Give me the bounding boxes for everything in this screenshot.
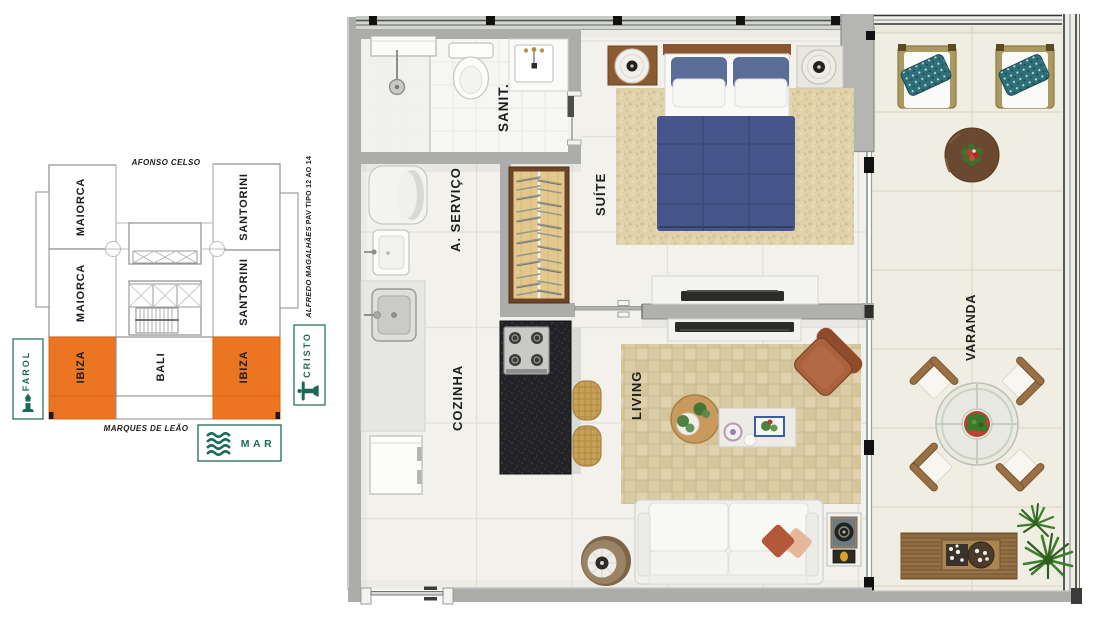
- svg-text:AFONSO CELSO: AFONSO CELSO: [131, 158, 201, 167]
- svg-text:MAIORCA: MAIORCA: [75, 178, 87, 236]
- svg-text:SUÍTE: SUÍTE: [593, 173, 608, 216]
- svg-text:SANTORINI: SANTORINI: [238, 173, 250, 241]
- svg-text:A. SERVIÇO: A. SERVIÇO: [448, 167, 463, 252]
- svg-text:SANTORINI: SANTORINI: [238, 258, 250, 326]
- svg-text:ALFREDO MAGALHÃES: ALFREDO MAGALHÃES: [304, 226, 313, 319]
- svg-text:PAV TIPO 12 AO 14: PAV TIPO 12 AO 14: [306, 156, 313, 224]
- svg-text:COZINHA: COZINHA: [450, 365, 465, 431]
- svg-text:IBIZA: IBIZA: [75, 351, 87, 384]
- svg-text:IBIZA: IBIZA: [238, 351, 250, 384]
- svg-text:FAROL: FAROL: [21, 351, 31, 392]
- svg-text:CRISTO: CRISTO: [302, 332, 312, 378]
- svg-text:MAIORCA: MAIORCA: [75, 264, 87, 322]
- svg-text:MAR: MAR: [241, 438, 275, 450]
- svg-text:BALI: BALI: [155, 353, 167, 382]
- svg-text:LIVING: LIVING: [629, 371, 644, 420]
- svg-text:MARQUES DE LEÃO: MARQUES DE LEÃO: [104, 424, 189, 433]
- svg-text:VARANDA: VARANDA: [964, 294, 978, 361]
